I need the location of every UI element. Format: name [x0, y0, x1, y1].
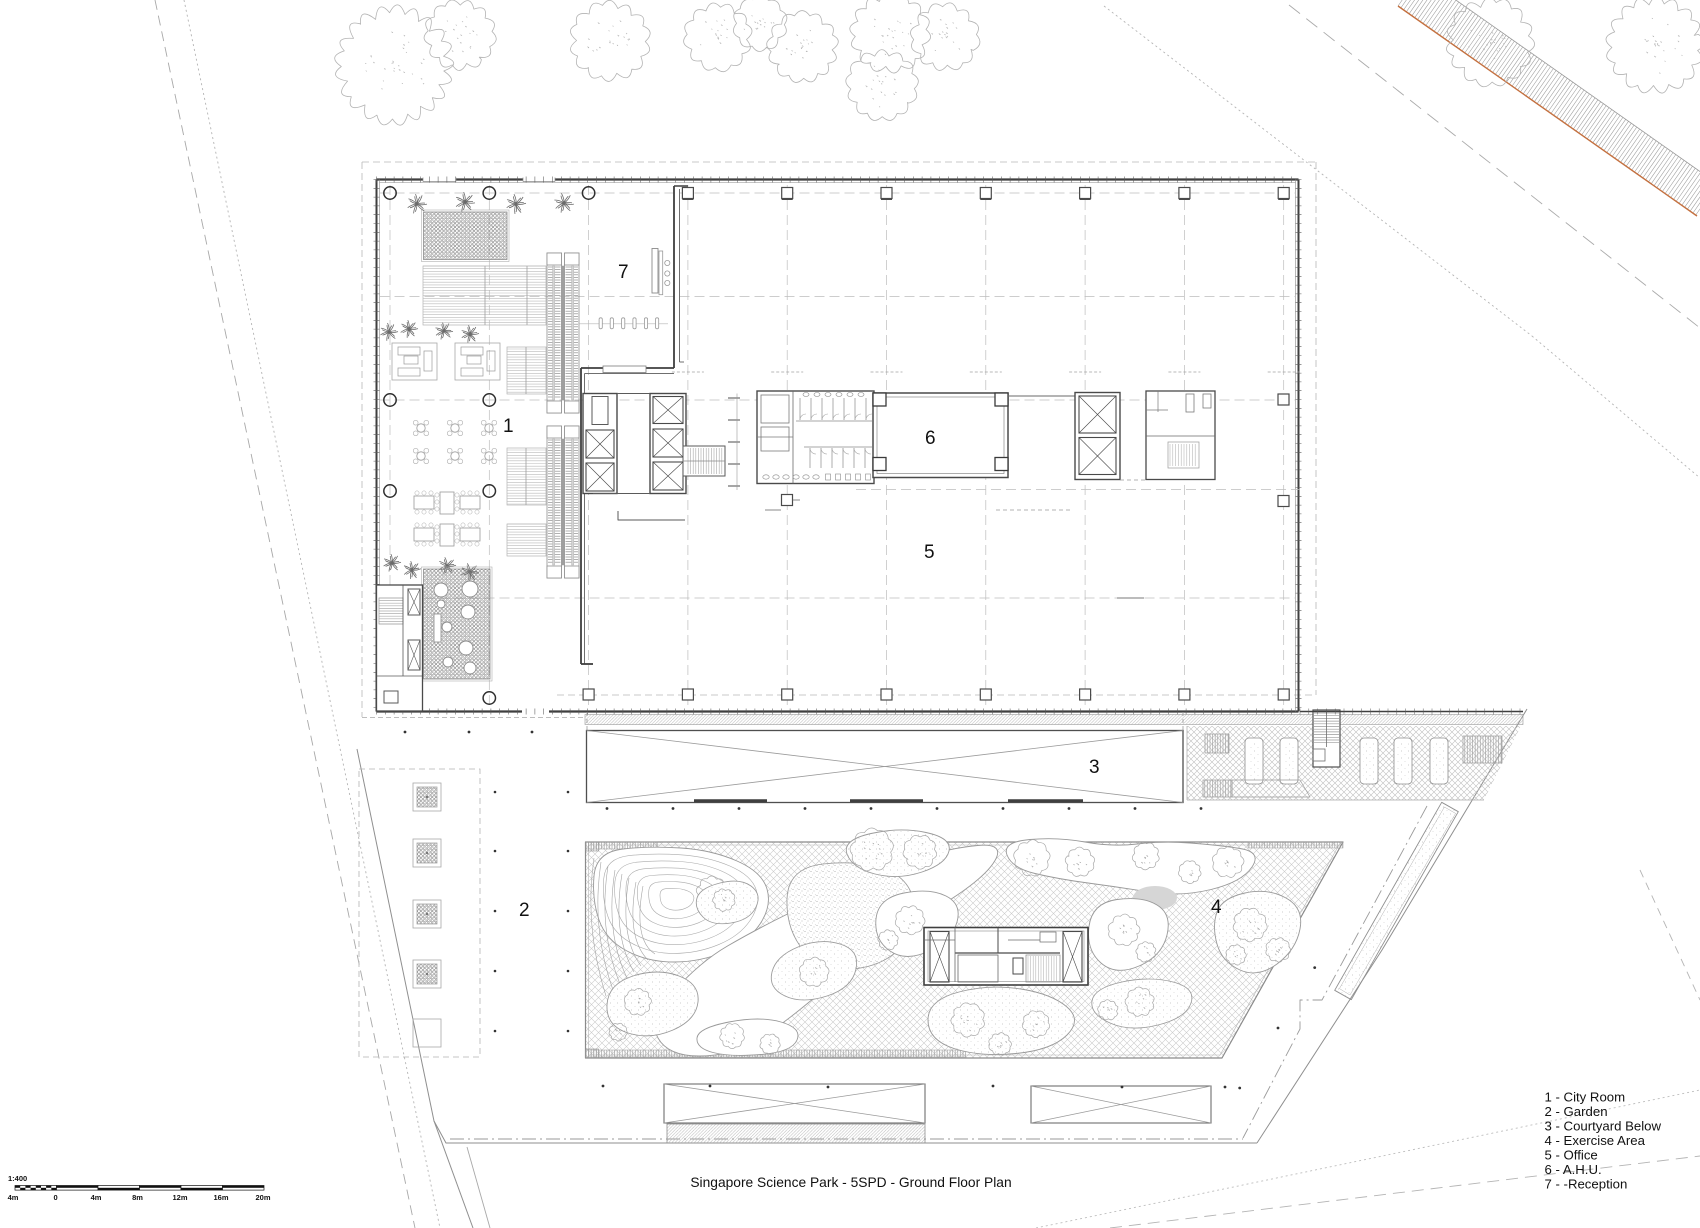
svg-text:1: 1 [503, 416, 514, 437]
svg-text:6 - A.H.U.: 6 - A.H.U. [1545, 1162, 1602, 1177]
svg-text:4: 4 [1211, 897, 1222, 918]
svg-text:7: 7 [618, 262, 629, 283]
svg-text:12m: 12m [172, 1193, 187, 1202]
svg-text:4 - Exercise Area: 4 - Exercise Area [1545, 1133, 1646, 1148]
svg-text:3: 3 [1089, 757, 1100, 778]
svg-text:20m: 20m [255, 1193, 270, 1202]
svg-text:2 - Garden: 2 - Garden [1545, 1104, 1608, 1119]
svg-text:1:400: 1:400 [8, 1174, 27, 1183]
svg-text:Singapore Science Park - 5SPD: Singapore Science Park - 5SPD - Ground F… [690, 1175, 1011, 1190]
svg-text:5: 5 [924, 542, 935, 563]
svg-text:4m: 4m [91, 1193, 102, 1202]
svg-text:0: 0 [54, 1193, 58, 1202]
svg-text:16m: 16m [213, 1193, 228, 1202]
svg-text:1 - City Room: 1 - City Room [1545, 1090, 1626, 1105]
svg-text:8m: 8m [132, 1193, 143, 1202]
svg-text:7 - -Reception: 7 - -Reception [1545, 1177, 1628, 1192]
svg-text:2: 2 [519, 900, 530, 921]
svg-text:5 - Office: 5 - Office [1545, 1148, 1598, 1163]
svg-text:4m: 4m [8, 1193, 19, 1202]
svg-text:6: 6 [925, 428, 936, 449]
svg-text:3 - Courtyard Below: 3 - Courtyard Below [1545, 1119, 1662, 1134]
